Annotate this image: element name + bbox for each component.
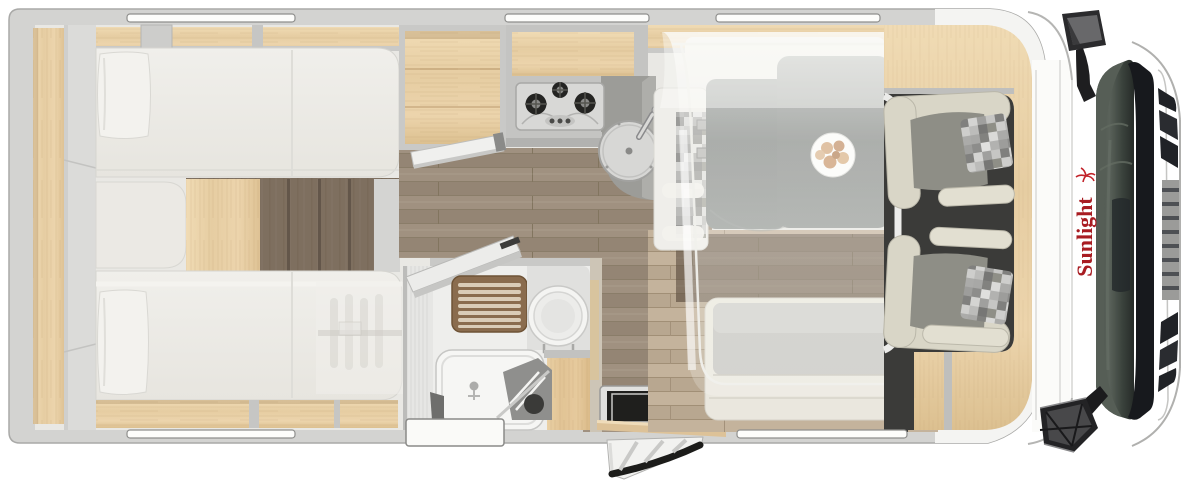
svg-text:Sunlight: Sunlight [1072,197,1097,277]
